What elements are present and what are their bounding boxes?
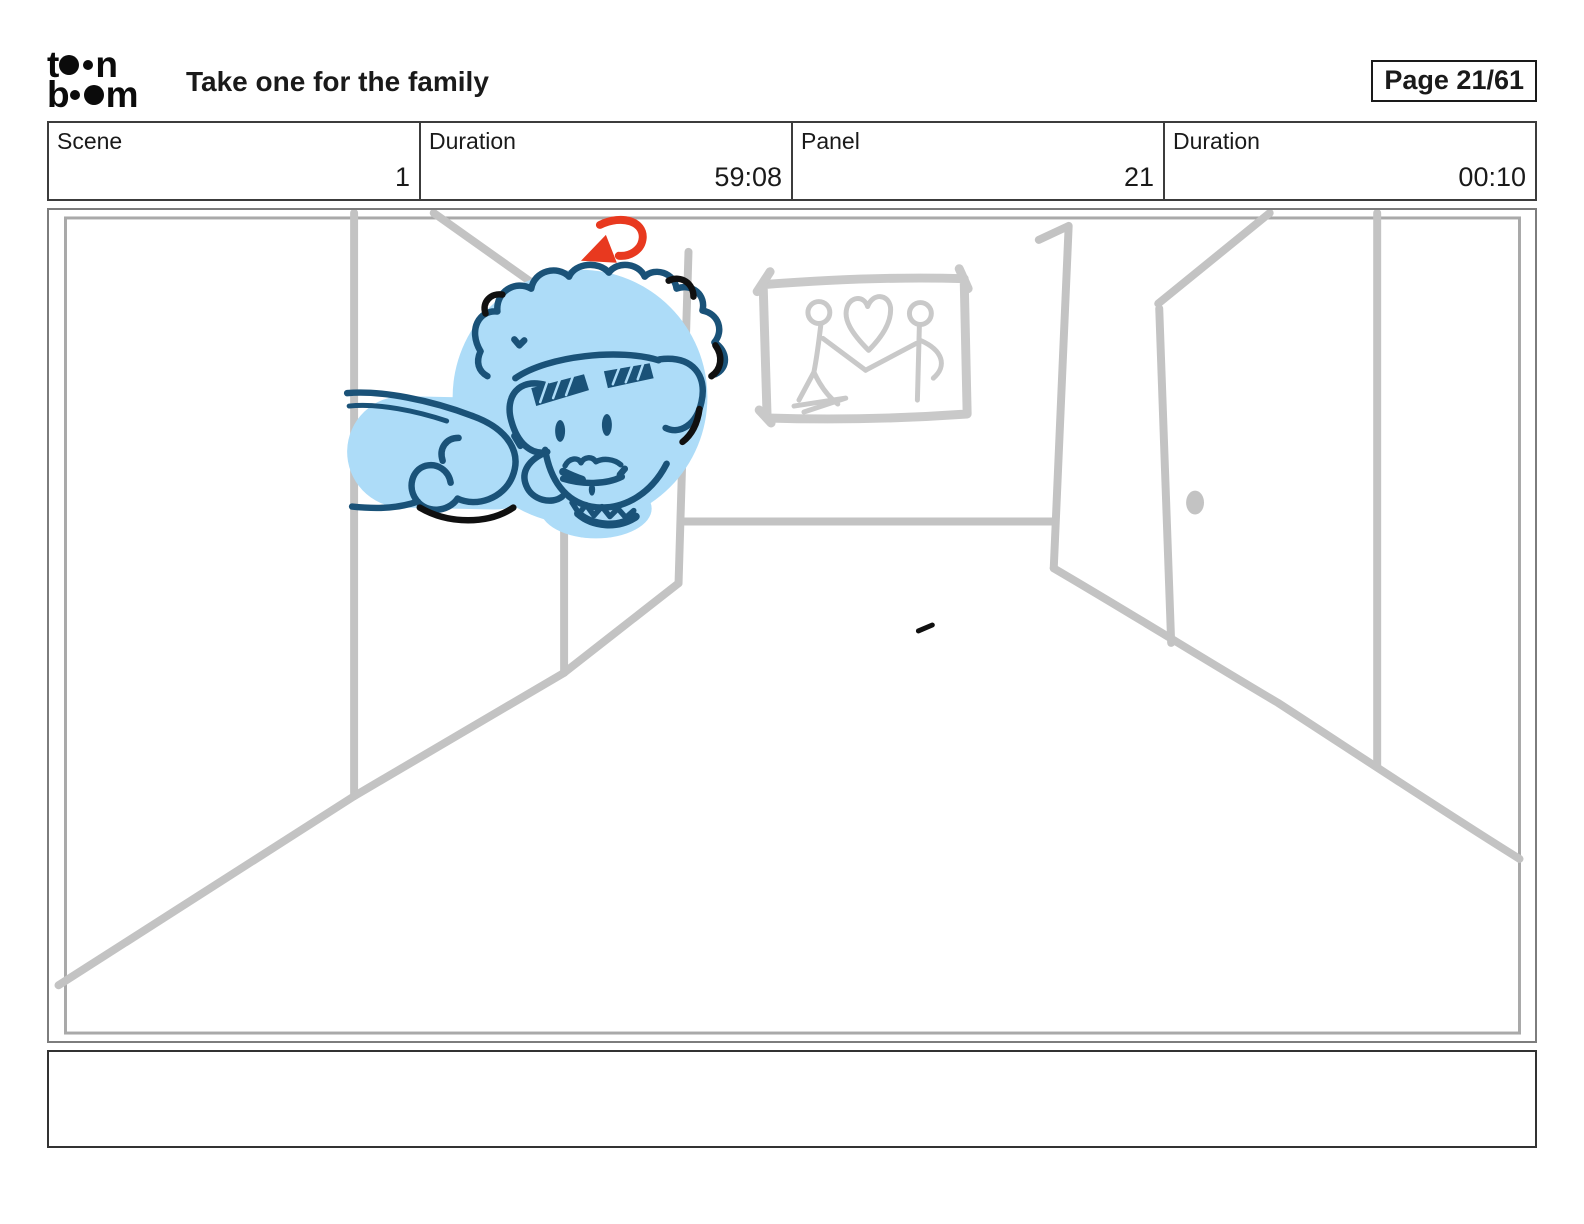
arm-fill	[403, 452, 495, 454]
scene-value: 1	[395, 162, 410, 193]
panel-number-label: Panel	[801, 128, 860, 155]
panel-duration-cell: Duration 00:10	[1165, 123, 1535, 199]
hallway-sketch	[59, 213, 1520, 985]
logo-letter: b	[47, 80, 68, 110]
storyboard-page: t n b m Take one for the family Page 21/…	[0, 0, 1584, 1224]
right-floor-line	[1054, 568, 1520, 859]
right-figure-body	[917, 325, 919, 400]
page-indicator: Page 21/61	[1371, 60, 1537, 102]
rotation-arrow-icon	[581, 220, 643, 263]
storyboard-sketch	[49, 210, 1535, 1041]
project-title: Take one for the family	[186, 66, 489, 98]
scene-duration-label: Duration	[429, 128, 516, 155]
left-floor-line	[59, 583, 679, 985]
arrow-head	[581, 235, 617, 263]
storyboard-drawing-panel	[47, 208, 1537, 1043]
logo-small-dot-icon	[70, 90, 80, 100]
logo-letter: m	[106, 80, 137, 110]
floor-mark	[918, 625, 932, 631]
left-doorway-top-line	[434, 213, 534, 284]
panel-number-value: 21	[1124, 162, 1154, 193]
panel-duration-value: 00:10	[1458, 162, 1526, 193]
panel-duration-label: Duration	[1173, 128, 1260, 155]
panel-info-row: Scene 1 Duration 59:08 Panel 21 Duration…	[47, 121, 1537, 201]
chin-dot	[589, 484, 595, 496]
right-door-top-edge	[1158, 213, 1269, 304]
right-figure-head	[909, 303, 931, 325]
logo-small-dot-icon	[83, 60, 93, 70]
doorknob	[1186, 491, 1204, 515]
toonboom-logo: t n b m	[47, 50, 177, 110]
stick-figures	[794, 297, 941, 412]
panel-number-cell: Panel 21	[793, 123, 1165, 199]
logo-line-2: b m	[47, 80, 177, 110]
logo-big-dot-icon	[59, 55, 79, 75]
hair-accent-right	[711, 345, 720, 376]
picture-frame	[757, 269, 968, 423]
left-figure-body	[814, 324, 821, 372]
caption-box	[47, 1050, 1537, 1148]
right-eye	[602, 414, 612, 436]
right-figure-arm-2	[920, 340, 941, 378]
left-eye	[555, 420, 565, 442]
scene-duration-value: 59:08	[714, 162, 782, 193]
scene-cell: Scene 1	[49, 123, 421, 199]
right-door-free-edge	[1159, 309, 1171, 643]
left-figure-head	[808, 302, 830, 324]
scene-duration-cell: Duration 59:08	[421, 123, 793, 199]
logo-big-dot-icon	[84, 85, 104, 105]
right-doorway-far-jamb	[1039, 226, 1069, 568]
heart-outline	[846, 297, 891, 351]
canvas-inner-border	[65, 218, 1519, 1033]
mouth-corner-tick	[620, 469, 625, 475]
scene-label: Scene	[57, 128, 122, 155]
